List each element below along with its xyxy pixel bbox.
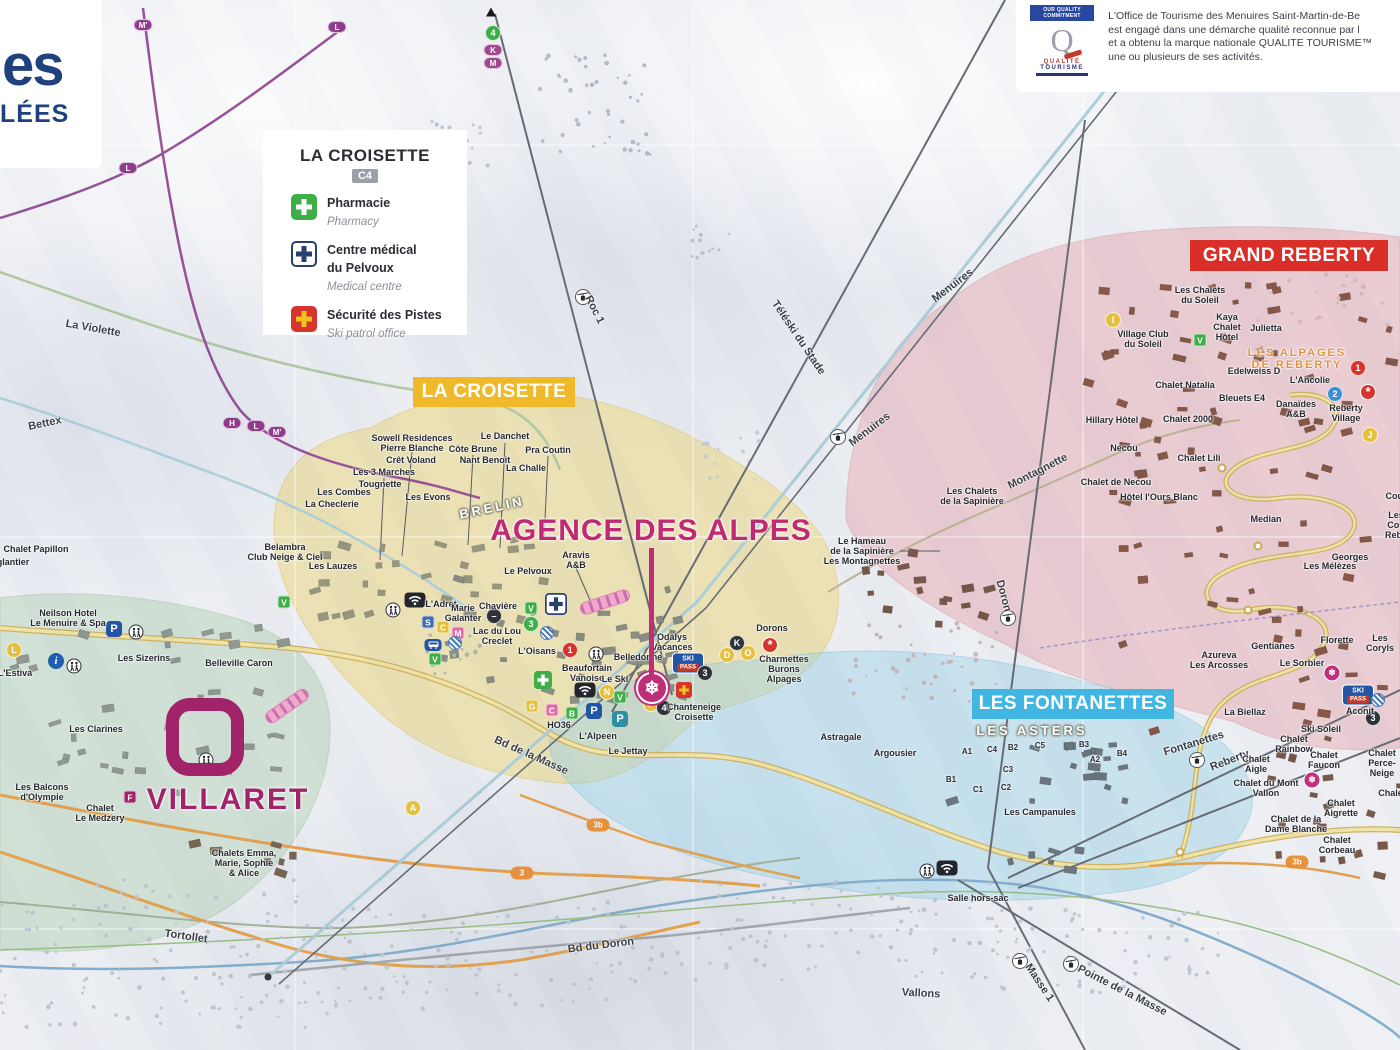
trail-badge-L: L — [328, 21, 347, 33]
ski-school-meeting-point-icon: ❄ — [1324, 665, 1341, 682]
trail-badge-3: 3 — [1365, 710, 1381, 726]
agence-des-alpes-callout: AGENCE DES ALPES — [490, 514, 812, 548]
gondola-lift-icon — [830, 429, 846, 445]
trail-badge-1: 1 — [1350, 360, 1366, 376]
wifi-icon — [937, 861, 958, 876]
trail-badge-4: 4 — [485, 25, 501, 41]
villaret-highlight-box — [166, 698, 244, 776]
patrol-cross-icon — [676, 682, 692, 698]
agence-pointer-line — [649, 548, 654, 676]
quality-text-line: est engagé dans une démarche qualité rec… — [1108, 24, 1392, 38]
ice-rink-icon — [540, 626, 554, 640]
legend-item-label: Pharmacie — [327, 196, 390, 210]
meeting-point-star-icon: * — [1360, 384, 1376, 400]
info-point-icon: i — [48, 653, 64, 669]
meeting-point-star-icon: * — [762, 637, 778, 653]
ski-patrol-cross-icon — [291, 306, 317, 337]
quality-commitment-label: OUR QUALITY COMMITMENT — [1030, 5, 1094, 21]
medical-cross-icon — [291, 241, 317, 272]
banner-grand-reberty: GRAND REBERTY — [1190, 240, 1388, 271]
trail-badge-3: 3 — [511, 867, 534, 880]
pharmacy-cross-icon — [534, 671, 552, 689]
legend-item: Centre médical du PelvouxMedical centre — [291, 241, 467, 295]
resort-logo-text: es — [2, 32, 63, 99]
ice-rink-icon — [1371, 693, 1385, 707]
ice-rink-icon — [448, 636, 462, 650]
quality-description: L'Office de Tourisme des Menuires Saint-… — [1108, 10, 1392, 92]
trail-badge-1: 1 — [562, 642, 578, 658]
gondola-lift-icon — [575, 289, 591, 305]
trail-badge-G: G — [526, 700, 539, 713]
wifi-icon — [405, 593, 426, 608]
parking-icon: P — [586, 703, 602, 719]
banner-les-fontanettes: LES FONTANETTES — [972, 689, 1174, 719]
legend-item: PharmaciePharmacy — [291, 194, 467, 230]
pharmacy-cross-icon — [291, 194, 317, 225]
road-stop-dot — [1176, 848, 1185, 857]
gondola-lift-icon — [1000, 610, 1016, 626]
bus-stop-icon — [425, 639, 442, 651]
trail-badge-K: K — [484, 44, 503, 56]
trail-badge-V: V — [614, 691, 627, 704]
trail-badge-C: C — [437, 621, 450, 634]
wifi-icon — [575, 683, 596, 698]
agence-location-marker: ❄ — [636, 672, 668, 704]
medical-cross-icon — [545, 593, 567, 615]
trail-badge-3b: 3b — [1286, 856, 1309, 869]
trail-badge-M: M — [484, 57, 503, 69]
trail-badge-L: L — [247, 420, 266, 432]
trail-badge-3b: 3b — [587, 819, 610, 832]
resort-logo-subtext: LÉES — [0, 100, 69, 129]
qualite-tourisme-wordmark: QUALITÉ TOURISME — [1030, 59, 1094, 76]
villaret-callout: VILLARET — [147, 783, 310, 817]
trail-badge-V: V — [278, 596, 291, 609]
legend-title: LA CROISETTE — [263, 146, 467, 166]
resort-logo-card: es LÉES — [0, 0, 102, 168]
ski-school-meeting-point-icon: ❄ — [1304, 772, 1321, 789]
trail-badge-V: V — [525, 602, 538, 615]
trail-badge-H: H — [223, 417, 242, 429]
trail-badge-3: 3 — [697, 665, 713, 681]
banner-la-croisette: LA CROISETTE — [413, 377, 575, 407]
trail-badge-M': M' — [268, 426, 287, 438]
legend-item-label: Sécurité des Pistes — [327, 308, 442, 322]
trail-badge-L: L — [6, 642, 22, 658]
gondola-lift-icon — [1063, 956, 1079, 972]
quality-text-line: et a obtenu la marque nationale QUALITE … — [1108, 37, 1392, 51]
resort-map: 4KMM'LLHLM'LiPVSCMV–V31NVGCBPPF4SKIPASS3… — [0, 0, 1400, 1050]
trail-badge-2: 2 — [1327, 386, 1343, 402]
legend-item-label-en: Ski patrol office — [327, 328, 406, 340]
quality-text-line: L'Office de Tourisme des Menuires Saint-… — [1108, 10, 1392, 24]
legend-item: Sécurité des PistesSki patrol office — [291, 306, 467, 342]
trail-badge-A: A — [405, 800, 421, 816]
trail-badge-3: 3 — [523, 616, 539, 632]
legend-card: LA CROISETTE C4 PharmaciePharmacy Centre… — [263, 130, 467, 335]
gondola-lift-icon — [1012, 953, 1028, 969]
pedestrian-icon — [589, 647, 604, 662]
trail-badge-C: C — [546, 704, 559, 717]
trail-badge-B: B — [566, 707, 579, 720]
pedestrian-icon — [129, 625, 144, 640]
parking-icon: P — [106, 621, 122, 637]
parking-icon: P — [612, 711, 628, 727]
trail-badge-I: I — [1105, 312, 1121, 328]
trail-badge-J: J — [1362, 427, 1378, 443]
trail-badge-F: F — [124, 791, 137, 804]
road-stop-dot — [1244, 606, 1253, 615]
trail-badge-S: S — [422, 616, 435, 629]
road-stop-dot — [1218, 464, 1227, 473]
trail-badge-K: K — [729, 635, 745, 651]
trail-badge-M': M' — [134, 19, 153, 31]
ski-pass-badge: SKIPASS — [1342, 685, 1374, 706]
trail-badge-–: – — [486, 608, 502, 624]
pedestrian-icon — [67, 659, 82, 674]
trail-badge-L: L — [119, 162, 138, 174]
grid-reference-badge: C4 — [352, 169, 378, 183]
quality-tourism-card: OUR QUALITY COMMITMENT Q QUALITÉ TOURISM… — [1016, 0, 1400, 92]
qualite-tourisme-logo: OUR QUALITY COMMITMENT Q QUALITÉ TOURISM… — [1030, 5, 1094, 92]
trail-badge-V: V — [1194, 334, 1207, 347]
trail-badge-V: V — [429, 653, 442, 666]
qualite-q-icon: Q — [1030, 21, 1094, 59]
legend-item-label-en: Medical centre — [327, 281, 402, 293]
pedestrian-icon — [920, 864, 935, 879]
gondola-lift-icon — [1189, 752, 1205, 768]
legend-item-label: Centre médical du Pelvoux — [327, 243, 417, 275]
pedestrian-icon — [386, 603, 401, 618]
north-arrow-icon — [486, 8, 496, 17]
legend-item-label-en: Pharmacy — [327, 216, 379, 228]
road-stop-dot — [1254, 542, 1263, 551]
quality-text-line: une ou plusieurs de ses activités. — [1108, 51, 1392, 65]
